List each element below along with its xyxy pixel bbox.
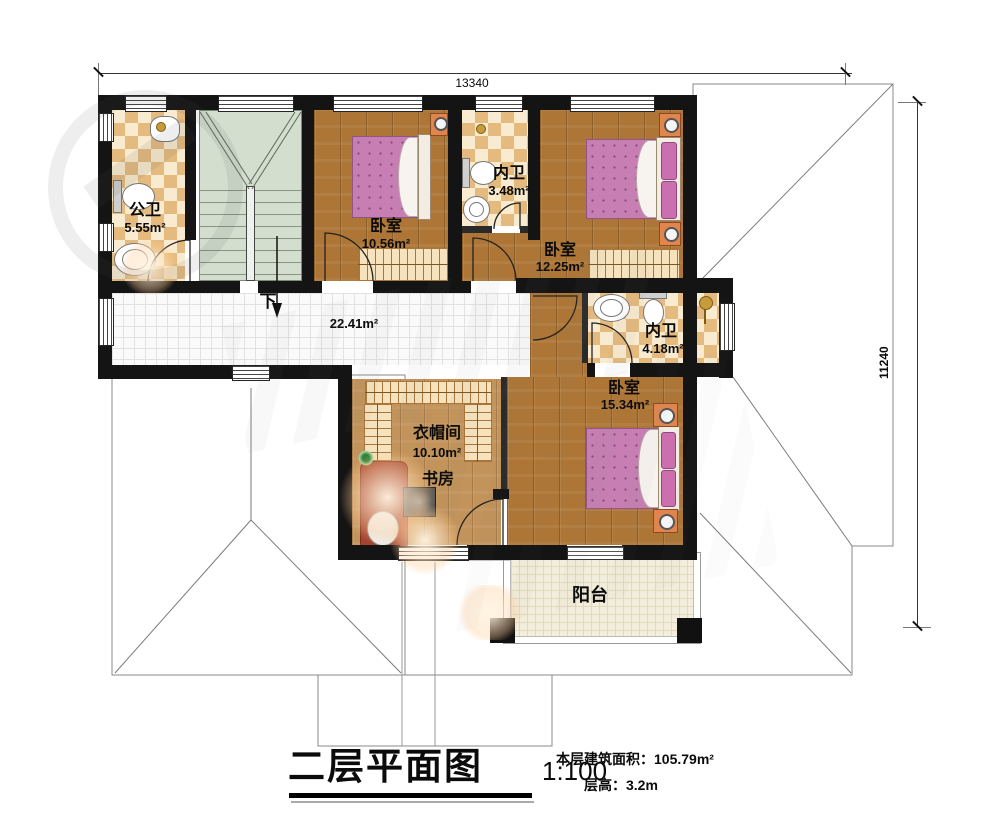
window-study-bottom — [398, 546, 469, 561]
window-bedroom-a-top — [333, 95, 423, 112]
floor-hallway — [112, 293, 530, 365]
room-label-inner-bath-a: 内卫 — [484, 166, 534, 183]
window-public-bath-left-1 — [98, 113, 114, 142]
wall-inner-bath-a-bottom-2 — [520, 226, 528, 233]
window-public-bath-left-2 — [98, 223, 114, 252]
window-stairs-top — [218, 95, 294, 112]
lamp-a-icon — [434, 117, 448, 131]
room-label-bedroom-c: 卧室 — [598, 381, 650, 398]
wall-stairs-right — [302, 110, 314, 281]
dim-ext-right-top — [898, 102, 926, 103]
wall-study-left — [338, 365, 352, 560]
room-area-bedroom-b: 12.25m² — [528, 260, 592, 274]
bed-b-pillow-2 — [661, 181, 677, 219]
floor-bedroom-b-entry — [462, 233, 540, 281]
shower-hose-icon — [704, 308, 706, 324]
bed-c-pillow-1 — [661, 432, 676, 469]
wall-hallway-bottom-2 — [268, 365, 338, 379]
wardrobe-a-rail — [358, 264, 448, 265]
bed-c-blanket — [638, 429, 660, 508]
room-area-public-bath: 5.55m² — [114, 221, 176, 235]
lamp-c2-icon — [659, 514, 675, 530]
title-underline-thick — [289, 793, 532, 798]
room-area-inner-bath-b: 4.18m² — [634, 342, 692, 356]
cloakroom-rack-left-rail — [377, 404, 378, 462]
stairs-handrail — [246, 186, 255, 281]
toilet-tank-inner-bath-a-icon — [462, 158, 470, 188]
note-area: 本层建筑面积：105.79m² — [556, 752, 766, 767]
bed-b-pillow-1 — [661, 142, 677, 180]
note-floor-height: 层高：3.2m — [584, 778, 714, 793]
title-underline-thin — [291, 801, 534, 803]
page-title: 二层平面图 — [288, 748, 540, 787]
wall-inner-bath-b-bottom-2 — [630, 363, 733, 377]
room-label-public-bath: 公卫 — [118, 203, 172, 220]
toilet-inner-bath-b-icon — [643, 299, 664, 326]
wall-study-bottom-right — [467, 545, 512, 560]
wall-bedroom-c-bottom-right — [622, 545, 697, 560]
roof-porch — [318, 675, 552, 746]
window-bedroom-b-top — [570, 95, 655, 112]
balcony-post-left — [490, 618, 515, 643]
wall-mid-4 — [516, 278, 587, 293]
dim-line-top — [98, 73, 852, 74]
shower-inner-bath-b-icon — [699, 296, 713, 310]
lamp-b1-icon — [664, 118, 679, 133]
room-label-inner-bath-b: 内卫 — [636, 324, 686, 341]
room-area-cloakroom: 10.10m² — [408, 446, 466, 460]
wardrobe-bedroom-b — [588, 249, 680, 281]
wall-study-bottom-left — [338, 545, 400, 560]
dim-width-value: 13340 — [442, 77, 502, 90]
porch-column-lines — [402, 562, 435, 746]
bed-a-blanket — [398, 137, 418, 217]
room-area-bedroom-c: 15.34m² — [592, 398, 658, 412]
wall-cloakroom-divider — [501, 377, 507, 499]
faucet-inner-bath-a-icon — [476, 124, 486, 134]
wall-study-door-stub — [493, 489, 509, 499]
wall-inner-bath-a-bottom-1 — [462, 226, 492, 233]
label-stairs-down: 下 — [256, 293, 280, 311]
dim-line-right — [917, 102, 918, 627]
sink-inner-bath-b-inner-icon — [600, 299, 623, 317]
sink-inner-bath-a-inner-icon — [469, 202, 484, 217]
wall-inner-bath-b-top — [587, 278, 733, 293]
study-plant-icon — [358, 450, 374, 466]
dim-height-value: 11240 — [878, 334, 896, 392]
window-inner-bath-a-top — [475, 95, 523, 112]
sink-public-bath-inner-icon — [122, 249, 148, 270]
window-public-bath-top — [125, 95, 167, 112]
wall-mid-1 — [98, 281, 240, 293]
window-hallway-bottom — [232, 365, 270, 381]
balcony-post-right — [677, 618, 702, 643]
room-label-balcony: 阳台 — [564, 586, 616, 605]
wardrobe-b-rail — [588, 264, 680, 265]
cloakroom-rack-right-rail — [477, 404, 478, 462]
balcony-sliding-door — [567, 546, 624, 560]
wall-inner-bath-b-bottom-1 — [587, 363, 595, 377]
wall-hallway-bottom-1 — [98, 365, 232, 379]
bed-b-blanket — [636, 140, 658, 218]
cloakroom-rack-top-rail — [365, 392, 492, 393]
wall-mid-3 — [373, 281, 471, 293]
floor-bedroom-c-entry — [530, 293, 587, 377]
room-label-study: 书房 — [416, 472, 460, 489]
floorplan-canvas: 公卫 5.55m² 卧室 10.56m² 内卫 3.48m² 卧室 12.25m… — [0, 0, 1000, 833]
study-monitor-icon — [403, 487, 436, 517]
room-area-hallway: 22.41m² — [324, 317, 384, 331]
room-area-bedroom-a: 10.56m² — [352, 237, 420, 251]
room-area-inner-bath-a: 3.48m² — [480, 184, 538, 198]
room-label-bedroom-a: 卧室 — [357, 219, 415, 236]
window-hallway-left — [98, 298, 114, 346]
lamp-c1-icon — [659, 408, 675, 424]
study-chair — [367, 511, 399, 546]
faucet-public-bath-icon — [156, 122, 166, 132]
wall-bedroom-a-right — [448, 110, 462, 281]
wall-bedroom-c-bottom-left — [510, 545, 567, 560]
room-label-bedroom-b: 卧室 — [534, 243, 586, 260]
room-label-cloakroom: 衣帽间 — [404, 426, 470, 443]
window-inner-bath-b-right — [719, 303, 735, 351]
dim-ext-top-left — [98, 63, 99, 95]
wall-public-bath-right — [185, 110, 196, 240]
wall-inner-bath-b-left — [582, 293, 588, 363]
bed-a-headboard — [418, 134, 431, 220]
bed-c-pillow-2 — [661, 470, 676, 507]
lamp-b2-icon — [664, 227, 679, 242]
